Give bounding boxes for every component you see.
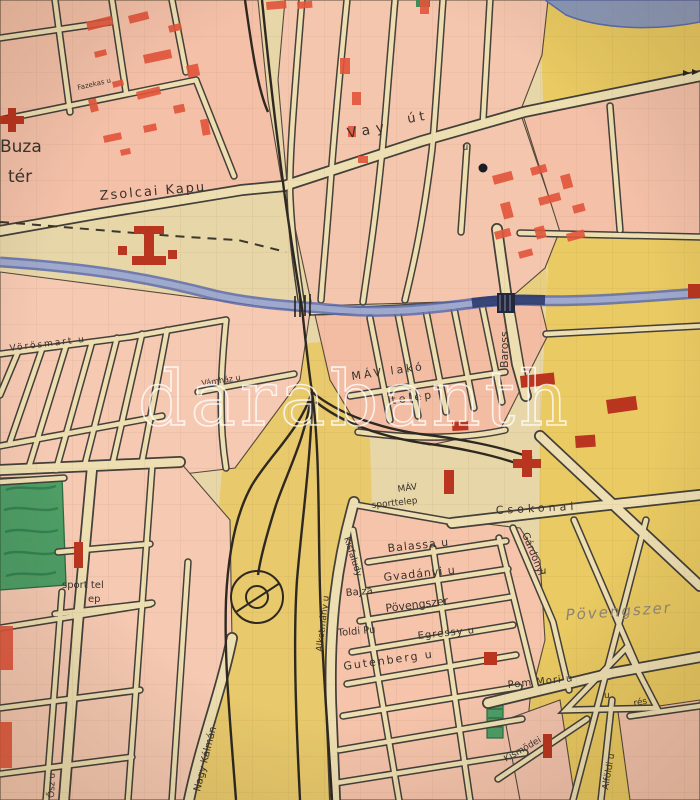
street-label: u [604,691,610,701]
city-map-svg: Fazekas u Buza tér Zsolcai Kapu Vay út u… [0,0,700,800]
street-label: u [540,566,546,577]
square-label: Buza [0,137,42,157]
watermark-text: darabanth [138,354,572,443]
area-label: ep [88,594,101,605]
street-label: Ősz u [46,773,58,798]
map-scan: Fazekas u Buza tér Zsolcai Kapu Vay út u… [0,0,700,800]
area-label: sport tel [62,580,104,591]
street-label: u [462,142,468,153]
square-label: tér [8,167,32,187]
